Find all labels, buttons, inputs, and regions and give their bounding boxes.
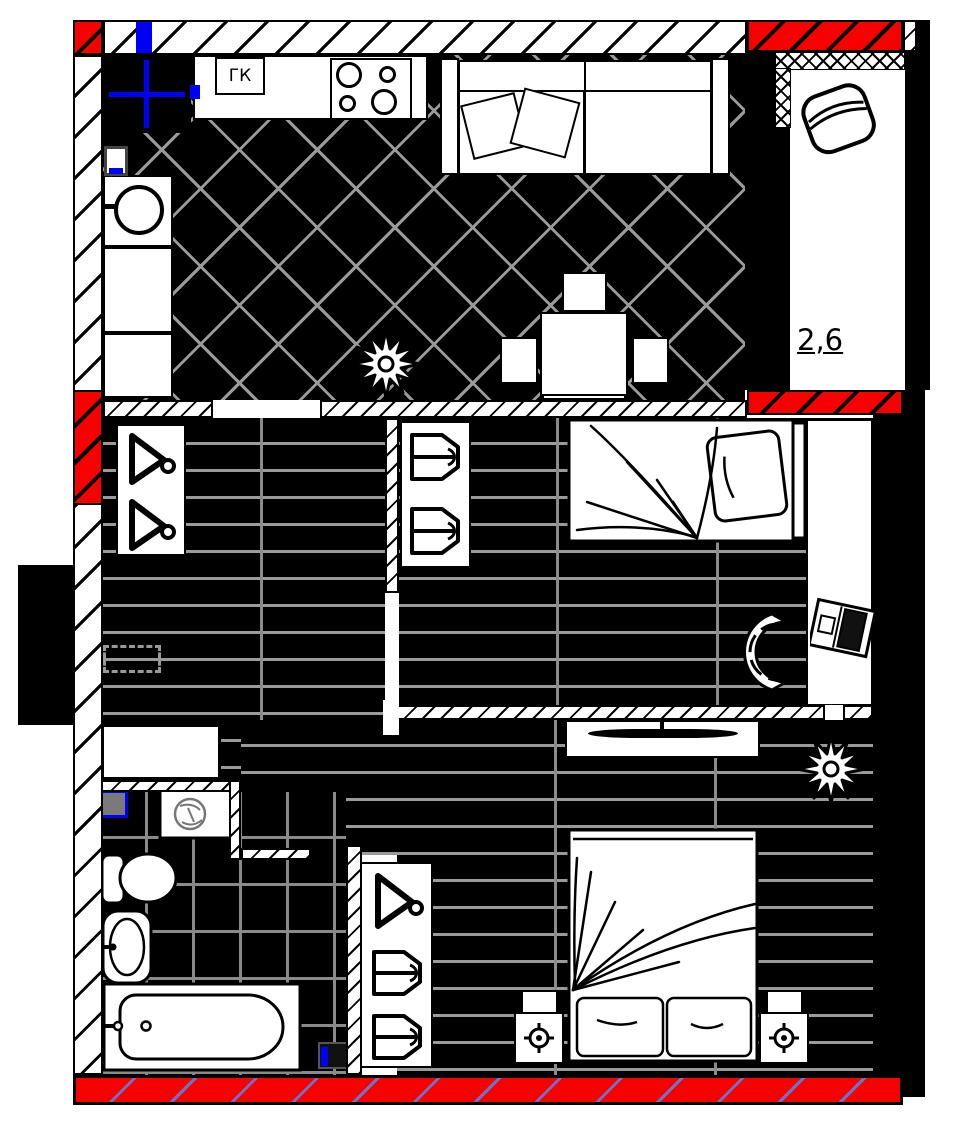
hall-cabinet bbox=[101, 724, 221, 780]
hall-wardrobe bbox=[116, 424, 186, 556]
bedroom1-left-wall bbox=[385, 418, 399, 593]
sofa-seat-right bbox=[584, 90, 712, 175]
double-bed bbox=[567, 828, 759, 1063]
toilet-icon bbox=[100, 850, 180, 908]
stove bbox=[330, 58, 412, 120]
tv-stem bbox=[660, 720, 664, 731]
gas-boiler-label: ГК bbox=[229, 66, 251, 86]
dining-chair-left bbox=[500, 337, 538, 384]
armchair-icon bbox=[793, 80, 883, 160]
bottom-exterior-wall bbox=[73, 1075, 903, 1105]
top-wall-window-marker bbox=[136, 22, 152, 53]
bedroom2-left-wall bbox=[346, 845, 362, 1075]
shaft-small-box-marker bbox=[109, 168, 123, 174]
shaft-marker-right bbox=[190, 85, 200, 99]
shaft-small-box bbox=[104, 146, 128, 176]
balcony-area-value: 2,6 bbox=[797, 323, 843, 357]
left-exterior-wall bbox=[73, 55, 103, 1075]
burner-large-1 bbox=[336, 62, 362, 88]
top-exterior-wall bbox=[103, 20, 747, 55]
bathtub-icon bbox=[102, 982, 302, 1072]
wall-red-top-right bbox=[747, 20, 903, 52]
wall-red-segment-left bbox=[73, 390, 103, 505]
plant-icon bbox=[350, 328, 422, 400]
dining-table bbox=[540, 312, 628, 396]
utility-box-marker bbox=[321, 1047, 328, 1066]
bed2-wardrobe bbox=[360, 862, 433, 1068]
balcony-glazing-band bbox=[775, 52, 905, 70]
mid-wall-left bbox=[103, 400, 213, 418]
sofa-right-armrest bbox=[711, 58, 730, 175]
wall-nub-top-right bbox=[903, 20, 917, 52]
bathroom-sink-icon bbox=[100, 908, 154, 986]
desk bbox=[806, 419, 873, 706]
office-chair-icon bbox=[738, 610, 810, 694]
hall-door-jamb bbox=[383, 700, 399, 735]
balcony-area-label: 2,6 bbox=[797, 323, 843, 357]
bathroom-vent-box bbox=[100, 790, 128, 818]
burner-small-2 bbox=[339, 95, 356, 112]
kitchen-sink-unit bbox=[103, 175, 173, 247]
shaft-cross-v bbox=[144, 60, 149, 128]
gas-boiler-box: ГК bbox=[215, 57, 265, 95]
bed1-shelf-unit bbox=[400, 421, 471, 568]
bathroom-step-wall-v bbox=[229, 780, 241, 860]
right-exterior-wall bbox=[873, 390, 925, 1075]
balcony-glazing-side bbox=[775, 68, 791, 128]
kitchen-sink-bowl bbox=[114, 185, 164, 235]
burner-large-2 bbox=[371, 89, 397, 115]
nightstand-right bbox=[759, 1012, 809, 1064]
dining-chair-top bbox=[562, 272, 607, 312]
bathroom-step-wall-h bbox=[241, 848, 311, 860]
washing-machine bbox=[158, 788, 234, 840]
wall-red-corner-topleft bbox=[73, 20, 103, 55]
nightstand-left bbox=[514, 1012, 564, 1064]
nightstand-left-lip bbox=[521, 990, 558, 1014]
plant-icon-2 bbox=[795, 733, 867, 805]
kitchen-cabinet-2 bbox=[103, 333, 173, 398]
single-bed bbox=[567, 418, 812, 543]
kitchen-cabinet-1 bbox=[103, 247, 173, 333]
bedrooms-divider-wall-a bbox=[397, 705, 825, 720]
floor-plan: ГК bbox=[0, 0, 958, 1126]
laptop-icon bbox=[810, 596, 874, 662]
left-wall-pilaster bbox=[18, 565, 73, 725]
bathroom-top-wall bbox=[101, 780, 241, 792]
sofa-backrest-divider bbox=[584, 60, 586, 92]
sofa-left-armrest bbox=[440, 58, 459, 175]
wall-red-under-balcony bbox=[747, 390, 903, 415]
nightstand-right-lip bbox=[766, 990, 803, 1014]
balcony-right-wall bbox=[905, 20, 930, 390]
hall-dashed-unit bbox=[103, 645, 161, 673]
kitchen-hall-opening bbox=[213, 400, 320, 418]
dining-chair-right bbox=[632, 337, 669, 384]
bedroom2-door-opening bbox=[825, 705, 843, 720]
sofa bbox=[440, 56, 730, 178]
burner-small-1 bbox=[379, 66, 396, 83]
bedrooms-divider-wall-b bbox=[843, 705, 873, 720]
mid-wall-right bbox=[320, 400, 747, 418]
